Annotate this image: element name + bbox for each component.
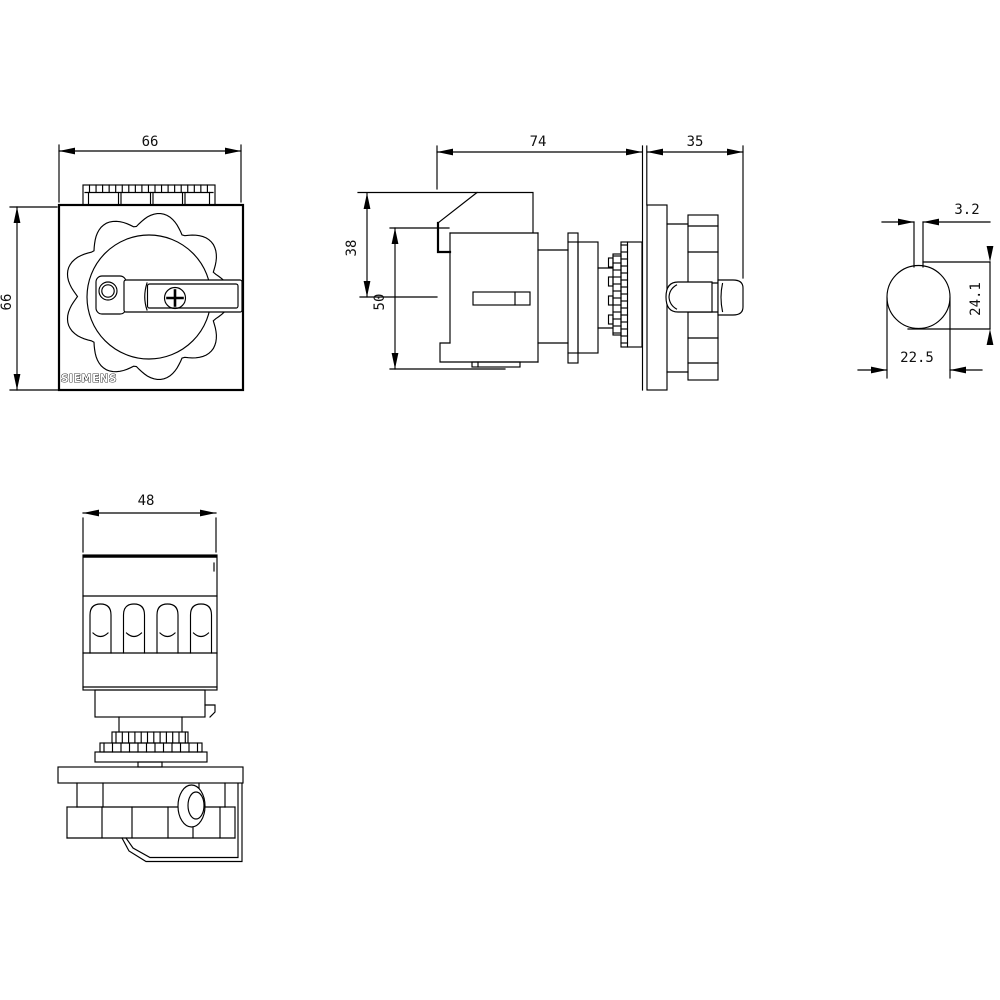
handle-grip-side bbox=[666, 282, 712, 312]
knob-base-plate bbox=[647, 205, 667, 390]
terminal-arch bbox=[124, 604, 145, 653]
dim-slot-width: 3.2 bbox=[882, 202, 990, 225]
terminal-strip bbox=[83, 185, 215, 205]
dim-shaft-height: 24.1 bbox=[908, 246, 993, 345]
body-foot bbox=[472, 362, 520, 367]
dim-side-handle-depth: 35 bbox=[647, 134, 743, 278]
brand-logo: SIEMENS bbox=[61, 373, 117, 385]
serrated-plate-teeth bbox=[621, 245, 628, 343]
serration-row bbox=[100, 743, 202, 752]
dim-label-slot-width: 3.2 bbox=[954, 202, 979, 218]
dim-label-shaft-height: 24.1 bbox=[968, 282, 984, 316]
label-slot bbox=[473, 292, 530, 305]
shaft-stem bbox=[138, 762, 162, 767]
arrowhead bbox=[225, 148, 241, 155]
serrated-hub-teeth bbox=[613, 256, 621, 333]
handle-grip-bottom-outer bbox=[178, 785, 205, 827]
dim-label-upper-height: 38 bbox=[344, 240, 360, 257]
body-outline bbox=[83, 555, 217, 690]
body-bottom-edge bbox=[440, 343, 538, 362]
terminal-arch bbox=[90, 604, 111, 653]
terminal-arch bbox=[157, 604, 178, 653]
dim-front-height: 66 bbox=[0, 207, 59, 390]
serration-row-teeth bbox=[104, 743, 198, 752]
lower-housing-tab bbox=[205, 705, 215, 717]
body-top-left-step bbox=[438, 223, 450, 252]
arrowhead bbox=[392, 228, 399, 244]
drawing-canvas: 66 66 bbox=[0, 0, 1000, 1000]
arrowhead bbox=[364, 281, 371, 297]
terminal-arches bbox=[90, 604, 212, 653]
arrowhead bbox=[200, 510, 216, 517]
serrated-hub bbox=[613, 254, 621, 335]
dim-label-handle-depth: 35 bbox=[687, 134, 704, 150]
bottom-view: 48 bbox=[58, 493, 243, 862]
dim-label-body-depth: 74 bbox=[530, 134, 547, 150]
screw-icon bbox=[165, 288, 186, 309]
terminal-arch-inner bbox=[160, 633, 175, 637]
arrowhead bbox=[871, 367, 887, 374]
terminal-arch-inner bbox=[194, 633, 209, 637]
arrowhead bbox=[647, 149, 663, 156]
serration-ring bbox=[95, 752, 207, 762]
hub-tooth bbox=[609, 258, 614, 267]
dim-label-front-width: 66 bbox=[142, 134, 159, 150]
shaft-section-view: 3.2 24.1 22.5 bbox=[858, 202, 993, 378]
terminal-arch bbox=[191, 604, 212, 653]
dim-side-body-depth: 74 bbox=[437, 134, 643, 390]
arrowhead bbox=[626, 149, 642, 156]
flange-drum bbox=[578, 242, 598, 353]
arrowhead bbox=[950, 367, 966, 374]
terminal-arch-inner bbox=[127, 633, 142, 637]
flange-plate bbox=[568, 233, 578, 363]
arrowhead bbox=[392, 353, 399, 369]
terminal-arch-inner bbox=[93, 633, 108, 637]
arrowhead bbox=[14, 207, 21, 223]
side-view: 74 35 38 50 bbox=[344, 134, 743, 390]
serration-row-teeth bbox=[116, 732, 185, 743]
knob-bottom bbox=[67, 783, 242, 862]
switch-body-bottom bbox=[58, 555, 243, 783]
hub-tooth bbox=[609, 315, 614, 324]
switch-body-side bbox=[438, 193, 642, 368]
handle-bar bbox=[124, 280, 242, 312]
terminal-strip-teeth bbox=[90, 185, 208, 192]
dim-shaft-width: 22.5 bbox=[858, 350, 982, 373]
hub-tooth bbox=[609, 296, 614, 305]
arrowhead bbox=[59, 148, 75, 155]
arrowhead bbox=[898, 219, 914, 226]
arrowhead bbox=[727, 149, 743, 156]
dim-label-shaft-width: 22.5 bbox=[900, 350, 934, 366]
dim-label-front-height: 66 bbox=[0, 294, 15, 311]
knob-side bbox=[647, 205, 743, 390]
arrowhead bbox=[14, 374, 21, 390]
dim-bottom-width: 48 bbox=[83, 493, 216, 552]
hub-tooth bbox=[609, 277, 614, 286]
dim-front-width: 66 bbox=[59, 134, 241, 202]
dim-label-lower-height: 50 bbox=[372, 294, 388, 311]
knob-handle bbox=[96, 276, 242, 314]
dim-label-bottom-width: 48 bbox=[138, 493, 155, 509]
body-top-box bbox=[438, 193, 533, 233]
arrowhead bbox=[923, 219, 939, 226]
terminal-strip-posts bbox=[89, 193, 210, 205]
arrowhead bbox=[987, 246, 994, 262]
arrowhead bbox=[364, 193, 371, 209]
arrowhead bbox=[987, 329, 994, 345]
arrowhead bbox=[83, 510, 99, 517]
front-view: 66 66 bbox=[0, 134, 243, 390]
shaft-circle bbox=[887, 266, 950, 329]
arrowhead bbox=[437, 149, 453, 156]
mounting-plate bbox=[58, 767, 243, 783]
lower-housing bbox=[95, 690, 205, 717]
serration-row bbox=[112, 732, 188, 743]
technical-drawing-page: 66 66 bbox=[0, 0, 1000, 1000]
